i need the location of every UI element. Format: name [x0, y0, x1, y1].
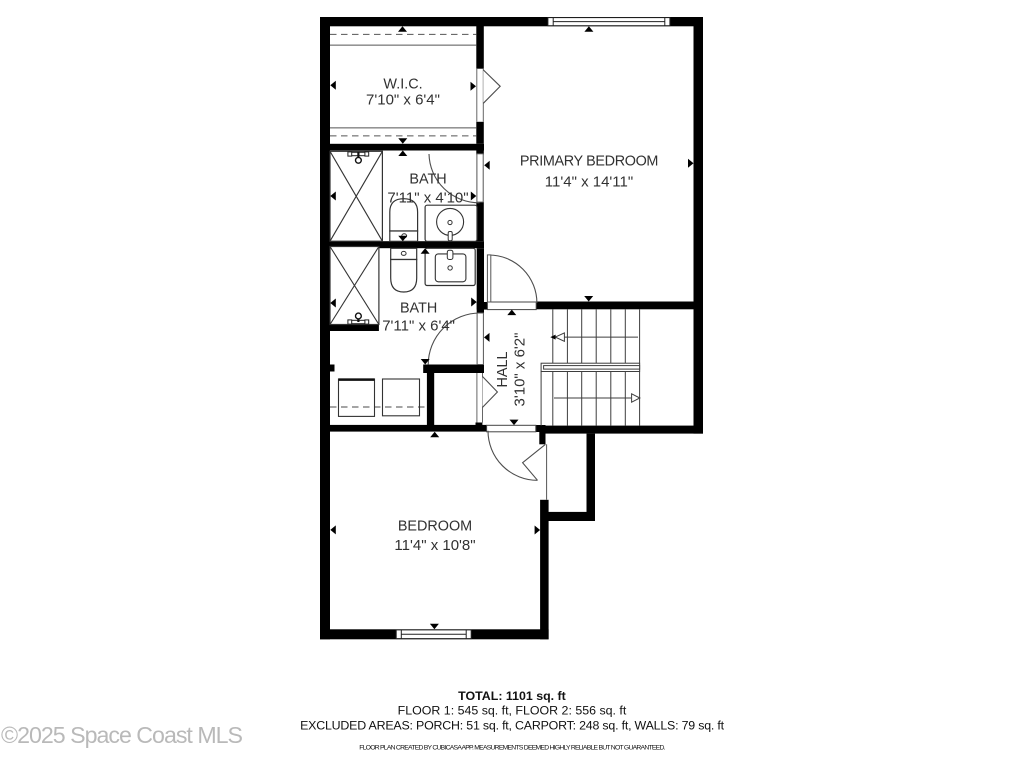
- svg-text:11'4" x 10'8": 11'4" x 10'8": [394, 537, 475, 554]
- svg-text:FLOOR PLAN CREATED BY CUBICASA: FLOOR PLAN CREATED BY CUBICASA APP. MEAS…: [359, 744, 665, 751]
- svg-text:TOTAL: 1101 sq. ft: TOTAL: 1101 sq. ft: [458, 689, 566, 703]
- svg-text:7'11" x 6'4": 7'11" x 6'4": [382, 317, 455, 334]
- svg-text:©2025 Space Coast MLS: ©2025 Space Coast MLS: [1, 722, 243, 748]
- svg-text:HALL: HALL: [495, 352, 511, 388]
- svg-text:EXCLUDED AREAS: PORCH: 51 sq.: EXCLUDED AREAS: PORCH: 51 sq. ft, CARPOR…: [300, 718, 725, 732]
- svg-text:W.I.C.: W.I.C.: [383, 76, 422, 92]
- svg-text:11'4" x 14'11": 11'4" x 14'11": [545, 173, 633, 190]
- svg-text:3'10" x 6'2": 3'10" x 6'2": [512, 333, 529, 407]
- svg-text:BEDROOM: BEDROOM: [398, 518, 472, 534]
- svg-text:7'11" x 4'10": 7'11" x 4'10": [387, 189, 468, 206]
- svg-text:PRIMARY BEDROOM: PRIMARY BEDROOM: [520, 153, 658, 169]
- svg-text:7'10" x 6'4": 7'10" x 6'4": [366, 91, 440, 108]
- svg-text:BATH: BATH: [400, 300, 437, 316]
- svg-text:BATH: BATH: [409, 171, 446, 187]
- svg-text:FLOOR 1: 545 sq. ft, FLOOR 2:: FLOOR 1: 545 sq. ft, FLOOR 2: 556 sq. ft: [398, 703, 627, 717]
